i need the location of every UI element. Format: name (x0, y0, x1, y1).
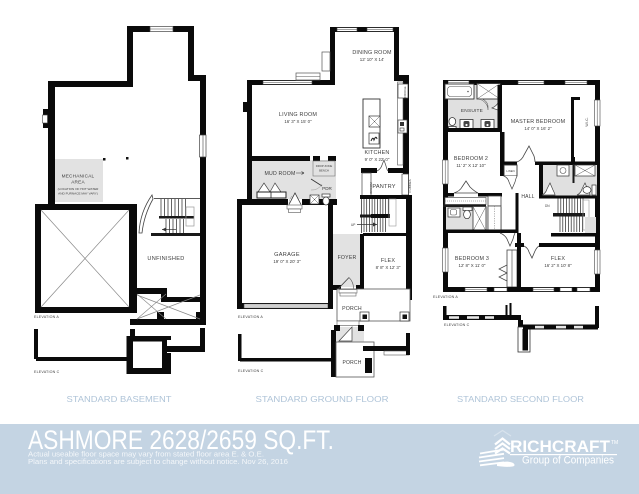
svg-text:PANTRY: PANTRY (372, 184, 395, 190)
svg-text:UP: UP (351, 223, 355, 227)
svg-text:DINING ROOM: DINING ROOM (352, 50, 392, 56)
svg-text:FRIDGE: FRIDGE (403, 86, 407, 97)
svg-text:KITCHEN: KITCHEN (364, 150, 389, 156)
svg-text:DN: DN (545, 204, 550, 208)
svg-text:HALL: HALL (521, 194, 534, 200)
svg-text:ELEVATION A: ELEVATION A (34, 315, 59, 319)
svg-text:PDR: PDR (322, 186, 332, 191)
svg-text:STANDARD BASEMENT: STANDARD BASEMENT (67, 394, 172, 404)
svg-text:W.I.C.: W.I.C. (585, 117, 589, 126)
svg-text:BEDROOM 2: BEDROOM 2 (454, 156, 488, 162)
svg-text:UNFINISHED: UNFINISHED (147, 256, 184, 262)
svg-text:STANDARD GROUND FLOOR: STANDARD GROUND FLOOR (256, 394, 389, 404)
svg-text:16' 3" X 15' 0": 16' 3" X 15' 0" (284, 119, 312, 124)
svg-text:ELEVATION C: ELEVATION C (444, 323, 470, 327)
svg-text:12' 8" X 11' 0": 12' 8" X 11' 0" (459, 263, 486, 268)
svg-text:11' 2" X 12' 10": 11' 2" X 12' 10" (456, 163, 486, 168)
svg-text:LINEN: LINEN (506, 169, 514, 173)
svg-text:Group of Companies: Group of Companies (522, 455, 614, 467)
svg-text:12' 10" X 14': 12' 10" X 14' (360, 57, 385, 62)
svg-text:TM: TM (611, 440, 618, 446)
svg-text:FOYER: FOYER (338, 255, 357, 261)
svg-text:16' 2" X 10' 8": 16' 2" X 10' 8" (544, 263, 572, 268)
svg-text:CUBBIES: CUBBIES (408, 179, 412, 192)
svg-text:RICHCRAFT: RICHCRAFT (510, 438, 610, 456)
svg-text:DROP ZONE: DROP ZONE (316, 164, 333, 168)
svg-text:ELEVATION A: ELEVATION A (238, 315, 263, 319)
svg-text:ELEVATION A: ELEVATION A (433, 295, 458, 299)
svg-text:ELEVATION C: ELEVATION C (34, 370, 60, 374)
svg-text:19' 0" X 20' 3": 19' 0" X 20' 3" (273, 259, 301, 264)
svg-text:AND FURNACE MAY VARY): AND FURNACE MAY VARY) (58, 192, 98, 196)
svg-text:14' 0" X 16' 2": 14' 0" X 16' 2" (524, 126, 552, 131)
svg-text:AREA: AREA (71, 180, 85, 185)
svg-text:STANDARD SECOND FLOOR: STANDARD SECOND FLOOR (457, 394, 584, 404)
svg-text:GARAGE: GARAGE (274, 252, 300, 258)
svg-text:9' 0" X 22' 0": 9' 0" X 22' 0" (365, 157, 390, 162)
svg-text:ELEVATION C: ELEVATION C (238, 369, 264, 373)
svg-text:PORCH: PORCH (342, 306, 362, 312)
svg-text:8' 8" X 12' 3": 8' 8" X 12' 3" (376, 265, 401, 270)
svg-text:PORCH: PORCH (342, 360, 361, 366)
svg-text:FLEX: FLEX (551, 256, 565, 262)
svg-text:MECHANICAL: MECHANICAL (62, 174, 95, 179)
svg-text:BENCH: BENCH (319, 169, 329, 173)
svg-text:Plans and specifications are s: Plans and specifications are subject to … (28, 457, 288, 466)
svg-text:BEDROOM 3: BEDROOM 3 (455, 256, 489, 262)
svg-text:FLEX: FLEX (381, 258, 395, 264)
svg-text:MASTER BEDROOM: MASTER BEDROOM (511, 119, 566, 125)
svg-text:MUD ROOM: MUD ROOM (265, 171, 296, 177)
svg-text:ENSUITE: ENSUITE (461, 108, 483, 114)
svg-text:LIVING ROOM: LIVING ROOM (279, 112, 317, 118)
svg-text:(LOCATION OF HOT WATER: (LOCATION OF HOT WATER (58, 187, 100, 191)
